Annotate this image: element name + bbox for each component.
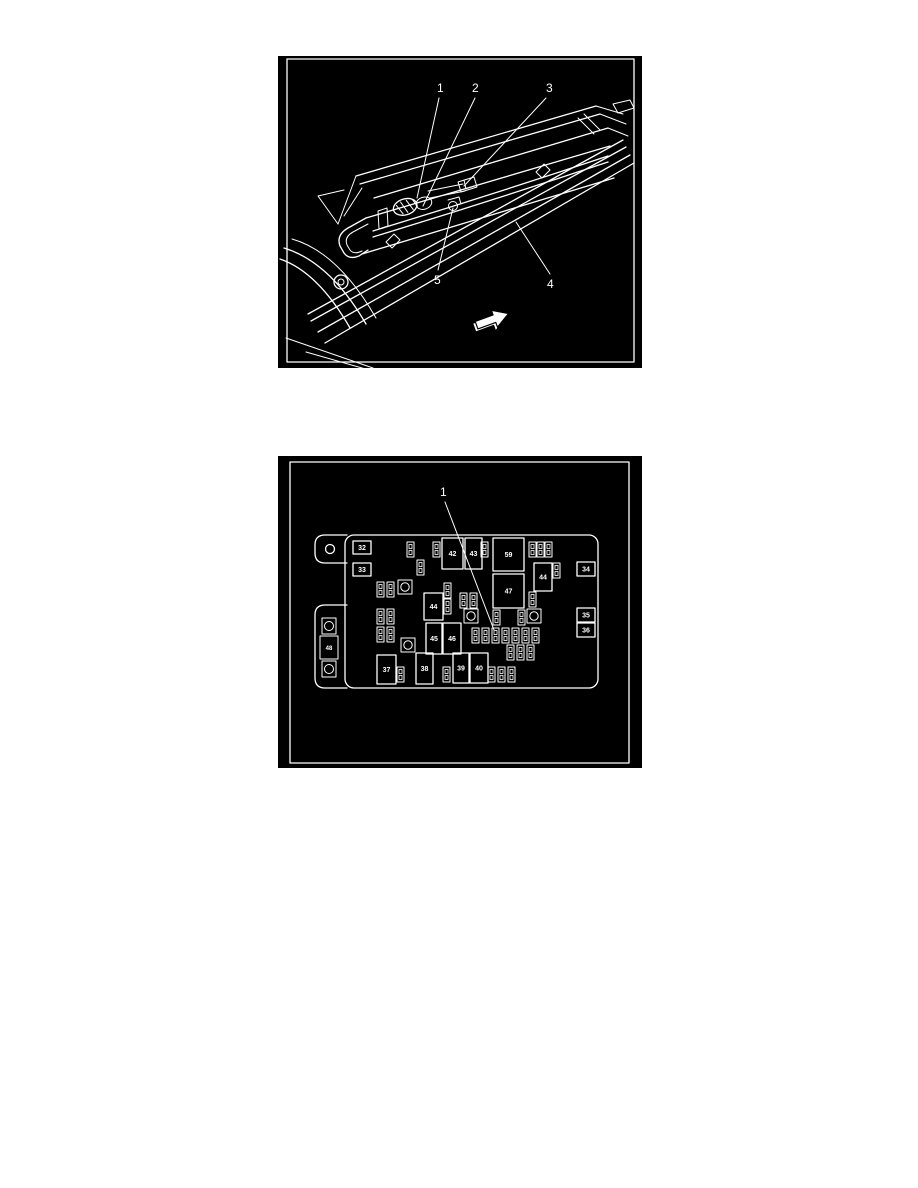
fuse-36: 36	[577, 623, 595, 637]
fuse-38: 38	[416, 653, 433, 684]
fuse-elements: 3233424359443447353644454637383940	[353, 538, 595, 684]
mini-fuse	[518, 610, 525, 625]
fuse-label: 44	[430, 604, 438, 611]
callout-1: 1	[437, 81, 444, 95]
mini-fuse	[444, 599, 451, 614]
mini-fuse	[527, 645, 534, 660]
fuse-label: 37	[383, 667, 391, 674]
fuse-37: 37	[377, 655, 396, 684]
mini-fuse	[433, 542, 440, 557]
callout-4: 4	[547, 277, 554, 291]
figure-underbody-routing: 1 2 3 5 4	[278, 56, 642, 368]
mini-fuse	[522, 628, 529, 643]
fuse-label: 46	[448, 636, 456, 643]
fuse-59: 59	[493, 538, 524, 571]
fuse-34: 34	[577, 562, 595, 576]
fuse-label: 45	[430, 636, 438, 643]
mini-fuse	[492, 628, 499, 643]
mini-fuse	[387, 627, 394, 642]
fuse-label: 44	[539, 575, 547, 582]
mini-fuse	[377, 582, 384, 597]
callout-2: 2	[472, 81, 479, 95]
fuse-label: 40	[475, 666, 483, 673]
mini-fuse	[553, 563, 560, 578]
mini-fuse	[507, 645, 514, 660]
fuse-label: 43	[470, 551, 478, 558]
frame-rail-lines	[308, 140, 634, 343]
stud-terminal-icon	[398, 580, 412, 594]
mini-fuse	[508, 667, 515, 682]
manual-page: { "page": { "background_color": "#ffffff…	[0, 0, 918, 1188]
fuse-39: 39	[453, 653, 469, 683]
fuse-label: 47	[505, 589, 513, 596]
fuse-46: 46	[443, 623, 461, 654]
fuse-35: 35	[577, 608, 595, 622]
mount-tab-top	[315, 535, 347, 563]
cab-structure-lines	[318, 100, 634, 229]
figure-fuse-block: 48 3233424359443447353644454637383940 1	[278, 456, 642, 768]
mini-fuse	[470, 593, 477, 608]
stud-terminal-icon	[401, 638, 415, 652]
fuse-44: 44	[424, 593, 443, 620]
mini-fuse	[407, 542, 414, 557]
mini-fuse	[387, 609, 394, 624]
callout-1: 1	[440, 485, 447, 499]
fuse-label: 32	[358, 545, 366, 552]
mini-fuse	[482, 628, 489, 643]
mega-fuse-48: 48	[320, 618, 338, 677]
underbody-routing-svg: 1 2 3 5 4	[278, 56, 642, 368]
fuse-label: 42	[449, 551, 457, 558]
fuse-45: 45	[426, 623, 442, 654]
rocker-channel-lines	[339, 146, 614, 257]
fuse-label: 36	[582, 628, 590, 635]
fuse-label: 39	[457, 666, 465, 673]
mini-fuse	[417, 560, 424, 575]
mini-fuse	[460, 593, 467, 608]
fuse-label: 38	[421, 666, 429, 673]
mini-fuse	[443, 667, 450, 682]
mini-fuse	[529, 542, 536, 557]
mount-hole-icon	[326, 545, 335, 554]
mini-fuse	[397, 667, 404, 682]
fuse-label: 59	[505, 552, 513, 559]
mini-fuse	[387, 582, 394, 597]
forward-direction-arrow-icon	[472, 305, 512, 335]
callout-5: 5	[434, 273, 441, 287]
stud-terminal-icon	[464, 609, 478, 623]
fuse-label: 34	[582, 567, 590, 574]
mini-fuse	[529, 592, 536, 607]
mini-fuse	[502, 628, 509, 643]
mini-fuse	[537, 542, 544, 557]
mini-fuse	[532, 628, 539, 643]
mini-fuse	[498, 667, 505, 682]
fuse-33: 33	[353, 563, 371, 576]
mini-fuse	[377, 609, 384, 624]
mini-fuse	[493, 610, 500, 625]
mini-fuse	[517, 645, 524, 660]
fuse-label: 35	[582, 613, 590, 620]
fuse-32: 32	[353, 541, 371, 554]
callout-3: 3	[546, 81, 553, 95]
figure-inner-border	[287, 59, 634, 362]
mini-fuse	[512, 628, 519, 643]
mini-fuse	[377, 627, 384, 642]
fuse-43: 43	[465, 538, 482, 569]
mega-fuse-label: 48	[326, 646, 333, 652]
fuse-40: 40	[470, 653, 488, 683]
fuse-47: 47	[493, 574, 524, 608]
figure-inner-border	[290, 462, 629, 763]
mini-fuse	[444, 583, 451, 598]
stud-terminal-icon	[527, 609, 541, 623]
fuse-block-svg: 48 3233424359443447353644454637383940 1	[278, 456, 642, 768]
fuse-label: 33	[358, 567, 366, 574]
mini-fuse	[545, 542, 552, 557]
fuse-42: 42	[442, 538, 463, 569]
mini-fuse	[488, 667, 495, 682]
fuse-44: 44	[534, 563, 552, 591]
mini-fuse	[472, 628, 479, 643]
